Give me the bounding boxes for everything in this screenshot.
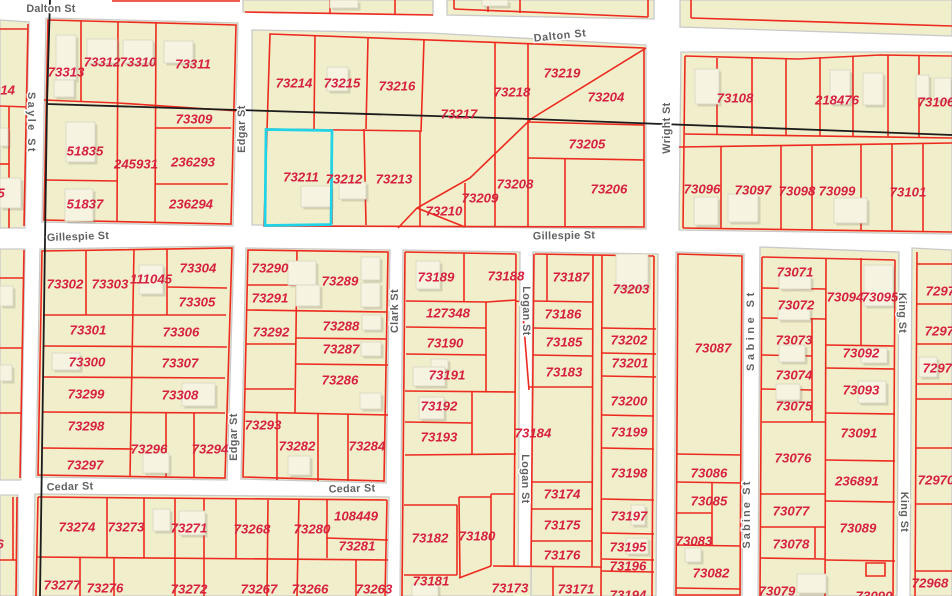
- svg-text:72971: 72971: [926, 284, 952, 299]
- svg-text:73206: 73206: [591, 182, 628, 197]
- svg-text:King St: King St: [898, 492, 910, 533]
- svg-text:73174: 73174: [544, 487, 581, 502]
- svg-text:Cedar St: Cedar St: [46, 480, 93, 493]
- svg-text:236293: 236293: [170, 155, 216, 170]
- svg-text:73266: 73266: [292, 582, 329, 596]
- svg-text:73306: 73306: [163, 325, 200, 340]
- svg-text:73210: 73210: [426, 204, 463, 219]
- svg-text:73273: 73273: [108, 520, 145, 535]
- svg-text:Sayle St: Sayle St: [25, 92, 37, 154]
- svg-text:73301: 73301: [70, 323, 107, 338]
- svg-text:73219: 73219: [544, 66, 581, 81]
- svg-text:73078: 73078: [773, 537, 810, 552]
- svg-text:73108: 73108: [717, 91, 754, 106]
- svg-text:73098: 73098: [779, 184, 816, 199]
- svg-text:73197: 73197: [611, 509, 648, 524]
- svg-text:73216: 73216: [379, 79, 416, 94]
- svg-text:73304: 73304: [180, 261, 217, 276]
- svg-text:73089: 73089: [840, 521, 877, 536]
- svg-text:73313: 73313: [48, 65, 85, 80]
- svg-text:73289: 73289: [322, 274, 359, 289]
- svg-text:127348: 127348: [426, 306, 471, 321]
- svg-text:Sabine St: Sabine St: [741, 480, 753, 549]
- svg-text:245931: 245931: [113, 157, 158, 172]
- svg-text:108449: 108449: [334, 509, 379, 524]
- svg-text:73185: 73185: [546, 335, 583, 350]
- svg-text:73092: 73092: [843, 346, 880, 361]
- svg-text:73309: 73309: [176, 112, 213, 127]
- svg-text:73287: 73287: [323, 342, 360, 357]
- svg-text:73182: 73182: [412, 531, 449, 546]
- svg-text:73307: 73307: [162, 356, 199, 371]
- svg-text:73211: 73211: [283, 170, 319, 185]
- svg-text:73071: 73071: [777, 265, 814, 280]
- svg-text:73280: 73280: [294, 522, 331, 537]
- svg-text:Logan St: Logan St: [520, 286, 532, 335]
- svg-text:73076: 73076: [775, 451, 812, 466]
- svg-text:Logan St: Logan St: [519, 454, 531, 503]
- svg-text:111045: 111045: [130, 272, 173, 287]
- svg-text:73217: 73217: [441, 107, 478, 122]
- svg-text:73201: 73201: [612, 356, 649, 371]
- svg-text:73193: 73193: [421, 430, 458, 445]
- svg-text:73188: 73188: [488, 269, 525, 284]
- svg-text:73199: 73199: [611, 425, 648, 440]
- svg-text:73074: 73074: [776, 368, 813, 383]
- svg-text:73082: 73082: [693, 566, 730, 581]
- svg-text:73096: 73096: [684, 182, 721, 197]
- svg-text:Gillespie St: Gillespie St: [47, 230, 110, 244]
- svg-text:73077: 73077: [773, 504, 810, 519]
- svg-text:73203: 73203: [613, 282, 650, 297]
- svg-text:Dalton St: Dalton St: [26, 3, 75, 15]
- svg-text:Edgar St: Edgar St: [228, 413, 240, 461]
- svg-text:Sabine St: Sabine St: [745, 289, 757, 371]
- svg-text:73215: 73215: [324, 76, 361, 91]
- svg-text:72970: 72970: [918, 473, 952, 488]
- svg-text:73311: 73311: [175, 57, 211, 72]
- svg-text:73075: 73075: [776, 399, 813, 414]
- svg-text:73202: 73202: [611, 333, 648, 348]
- svg-text:73272: 73272: [171, 582, 208, 596]
- svg-text:73189: 73189: [418, 270, 455, 285]
- svg-text:236294: 236294: [168, 197, 214, 212]
- svg-text:72971: 72971: [925, 324, 952, 339]
- svg-text:51835: 51835: [67, 144, 104, 159]
- svg-text:72971: 72971: [923, 361, 952, 376]
- svg-text:73191: 73191: [429, 368, 466, 383]
- svg-text:73271: 73271: [171, 521, 208, 536]
- svg-text:73305: 73305: [179, 295, 216, 310]
- svg-text:73085: 73085: [691, 494, 728, 509]
- svg-text:73180: 73180: [459, 529, 496, 544]
- svg-text:218476: 218476: [814, 93, 860, 108]
- svg-text:73106: 73106: [918, 95, 952, 110]
- svg-text:73090: 73090: [856, 589, 893, 596]
- svg-text:51837: 51837: [67, 197, 104, 212]
- svg-text:73308: 73308: [162, 388, 199, 403]
- svg-text:73310: 73310: [120, 55, 157, 70]
- svg-text:73293: 73293: [245, 418, 282, 433]
- svg-text:73291: 73291: [252, 291, 289, 306]
- svg-text:73183: 73183: [546, 365, 583, 380]
- svg-text:73212: 73212: [326, 172, 363, 187]
- svg-text:73194: 73194: [610, 588, 647, 596]
- svg-text:73192: 73192: [421, 399, 458, 414]
- svg-text:Edgar St: Edgar St: [236, 105, 248, 153]
- svg-text:73099: 73099: [819, 184, 856, 199]
- svg-text:73171: 73171: [558, 582, 595, 596]
- svg-text:73175: 73175: [544, 518, 581, 533]
- svg-text:73312: 73312: [84, 55, 121, 70]
- svg-text:73086: 73086: [691, 466, 728, 481]
- svg-text:73294: 73294: [192, 442, 229, 457]
- svg-text:73072: 73072: [778, 298, 815, 313]
- svg-text:236891: 236891: [834, 474, 879, 489]
- svg-text:5: 5: [0, 186, 5, 201]
- svg-text:73195: 73195: [610, 540, 647, 555]
- svg-text:73196: 73196: [610, 559, 647, 574]
- svg-text:73298: 73298: [68, 419, 105, 434]
- svg-text:73095: 73095: [862, 290, 899, 305]
- svg-text:73173: 73173: [492, 581, 529, 596]
- svg-text:Clark St: Clark St: [389, 289, 401, 333]
- svg-text:73083: 73083: [676, 534, 713, 549]
- svg-text:214: 214: [0, 83, 16, 98]
- svg-text:73284: 73284: [349, 439, 386, 454]
- svg-text:73299: 73299: [68, 387, 105, 402]
- svg-text:73303: 73303: [92, 277, 129, 292]
- svg-text:Cedar St: Cedar St: [328, 482, 375, 495]
- svg-text:73292: 73292: [253, 325, 290, 340]
- svg-text:73296: 73296: [131, 442, 168, 457]
- svg-text:73282: 73282: [279, 439, 316, 454]
- svg-text:73209: 73209: [462, 191, 499, 206]
- svg-text:73288: 73288: [323, 319, 360, 334]
- svg-text:73094: 73094: [827, 290, 864, 305]
- svg-text:73198: 73198: [611, 466, 648, 481]
- svg-text:73268: 73268: [234, 522, 271, 537]
- svg-text:73087: 73087: [695, 341, 732, 356]
- svg-text:73200: 73200: [611, 394, 648, 409]
- svg-text:73277: 73277: [44, 578, 81, 593]
- svg-text:72968: 72968: [912, 576, 949, 591]
- svg-text:Wright St: Wright St: [661, 102, 673, 153]
- svg-text:Gillespie St: Gillespie St: [533, 229, 596, 242]
- svg-text:73101: 73101: [890, 185, 927, 200]
- svg-text:73190: 73190: [427, 336, 464, 351]
- svg-text:73079: 73079: [759, 584, 796, 596]
- svg-text:73276: 73276: [87, 581, 124, 596]
- svg-text:73181: 73181: [413, 574, 450, 589]
- svg-text:73093: 73093: [843, 383, 880, 398]
- svg-text:73274: 73274: [59, 520, 96, 535]
- svg-text:73186: 73186: [545, 307, 582, 322]
- svg-text:73205: 73205: [569, 137, 606, 152]
- svg-text:73097: 73097: [735, 183, 772, 198]
- svg-text:73218: 73218: [494, 85, 531, 100]
- svg-text:73297: 73297: [67, 458, 104, 473]
- svg-text:73214: 73214: [276, 76, 313, 91]
- svg-text:73073: 73073: [776, 333, 813, 348]
- svg-text:King St: King St: [896, 293, 908, 334]
- svg-text:73281: 73281: [339, 539, 376, 554]
- svg-text:73263: 73263: [356, 582, 393, 596]
- svg-text:73208: 73208: [497, 177, 534, 192]
- svg-text:73204: 73204: [588, 90, 625, 105]
- svg-text:73290: 73290: [252, 261, 289, 276]
- svg-text:73091: 73091: [841, 426, 878, 441]
- svg-text:73300: 73300: [69, 355, 106, 370]
- svg-text:73213: 73213: [376, 172, 413, 187]
- svg-text:73267: 73267: [241, 582, 278, 596]
- svg-text:73286: 73286: [322, 373, 359, 388]
- svg-text:73302: 73302: [47, 277, 84, 292]
- svg-text:73184: 73184: [515, 426, 552, 441]
- svg-text:73187: 73187: [553, 270, 590, 285]
- svg-text:73176: 73176: [544, 548, 581, 563]
